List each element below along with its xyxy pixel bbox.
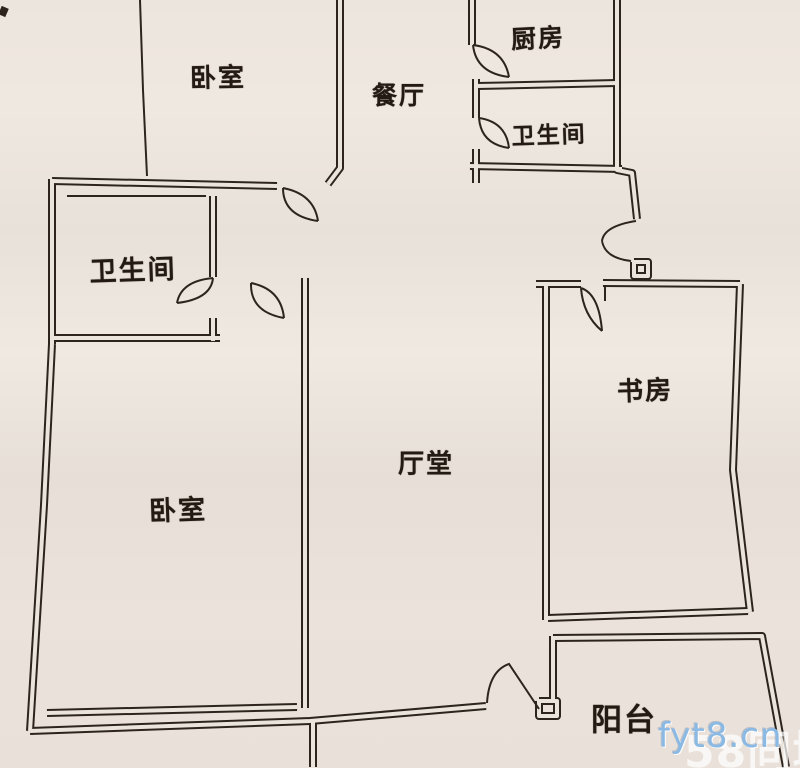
room-label-study: 书房 bbox=[616, 370, 673, 409]
fyt8-watermark: fyt8.cn bbox=[658, 716, 783, 756]
room-label-balcony: 阳台 bbox=[591, 695, 657, 740]
room-label-bedroom-bottom: 卧室 bbox=[148, 487, 207, 528]
room-label-bedroom-top: 卧室 bbox=[190, 57, 247, 95]
room-label-bathroom-left: 卫生间 bbox=[89, 247, 177, 289]
floor-plan-walls bbox=[0, 0, 800, 768]
room-label-kitchen: 厨房 bbox=[510, 18, 566, 57]
floor-plan-photo: 卧室餐厅厨房卫生间卫生间书房厅堂卧室阳台 58同城 fyt8.cn bbox=[0, 0, 800, 768]
room-label-hall: 厅堂 bbox=[398, 444, 454, 481]
room-label-dining: 餐厅 bbox=[372, 76, 426, 112]
room-label-bathroom-top: 卫生间 bbox=[511, 115, 587, 152]
